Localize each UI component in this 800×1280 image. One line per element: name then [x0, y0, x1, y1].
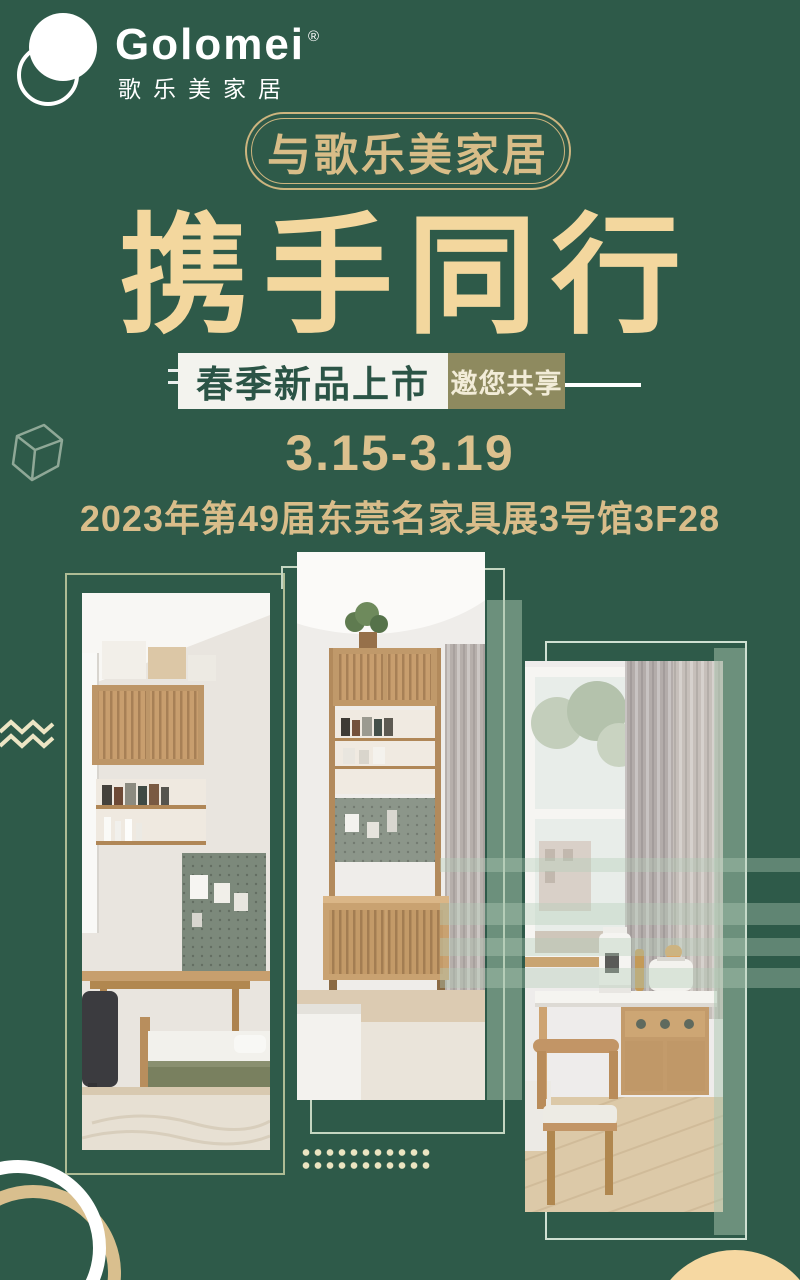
date-range: 3.15-3.19: [0, 424, 800, 482]
rug: [82, 1087, 270, 1150]
brand-name-text: Golomei: [115, 20, 305, 69]
brand-name: Golomei®: [115, 20, 321, 70]
poster-background: Golomei® 歌乐美家居 与歌乐美家居 携手同行 春季新品上市 邀您共享 3…: [0, 0, 800, 1280]
bed-corner: [297, 1004, 361, 1100]
tall-shelf-unit: [329, 648, 441, 898]
book-shelf: [96, 779, 206, 845]
wall-cabinet: [92, 685, 204, 765]
vertical-band-left: [487, 600, 522, 1100]
venue-line: 2023年第49届东莞名家具展3号馆3F28: [0, 490, 800, 542]
photo-window-desk: [525, 661, 723, 1212]
banner-left-tick-top: [168, 369, 178, 372]
base-cabinet: [323, 896, 449, 990]
banner-white-badge: 春季新品上市: [178, 353, 448, 409]
zigzag-icon: [0, 719, 58, 753]
banner-olive-badge: 邀您共享: [448, 353, 565, 409]
photo-study-room: [82, 593, 270, 1150]
horizontal-stripe: [440, 903, 800, 925]
banner-left-label: 春季新品上市: [196, 354, 430, 408]
brand-chinese-name: 歌乐美家居: [118, 70, 293, 104]
pegboard: [182, 853, 266, 971]
white-ring-icon: [0, 1160, 106, 1280]
horizontal-stripe: [440, 858, 800, 872]
banner-right-line: [565, 383, 641, 387]
dots-grid-icon: [300, 1146, 434, 1172]
photo-frame-middle-corner: [281, 566, 298, 589]
photo-shelf-room: [297, 552, 485, 1100]
gold-circle-icon: [650, 1250, 800, 1280]
logo-circle-icon: [29, 13, 97, 81]
horizontal-stripe: [440, 968, 800, 988]
horizontal-stripe: [440, 938, 800, 956]
banner-right-label: 邀您共享: [451, 362, 563, 401]
main-title: 携手同行: [0, 192, 800, 337]
grey-curtain: [445, 644, 485, 1012]
registered-trademark: ®: [308, 28, 321, 45]
